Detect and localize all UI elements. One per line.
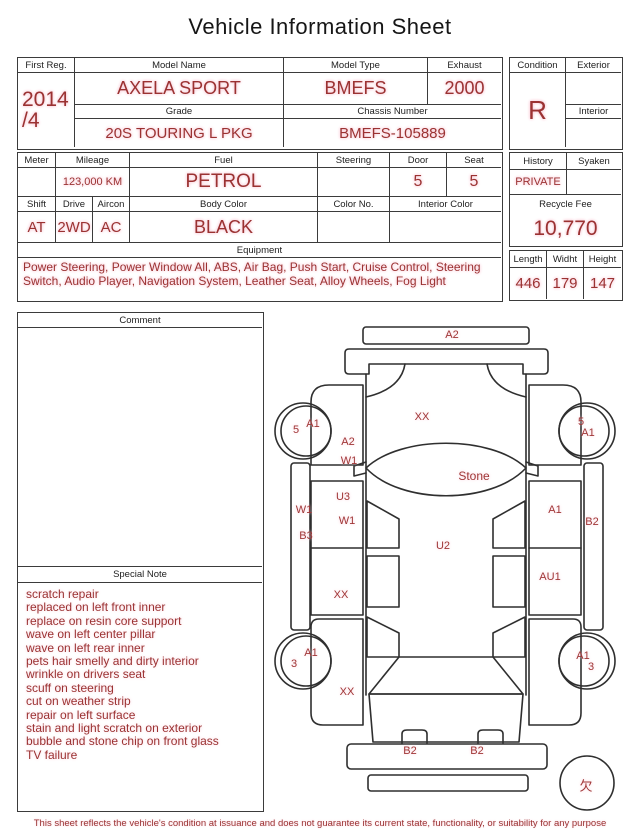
comment-note-box: Comment Special Note scratch repairrepla… <box>17 312 264 812</box>
mileage-value: 123,000 KM <box>56 168 130 197</box>
exterior-label: Exterior <box>566 58 621 73</box>
comment-area <box>18 328 262 567</box>
exhaust-value: 2000 <box>428 73 501 105</box>
special-note-line: wave on left center pillar <box>26 628 254 641</box>
condition-label: Condition <box>510 58 566 73</box>
footer-disclaimer: This sheet reflects the vehicle's condit… <box>0 818 640 829</box>
diagram-code-label: A1 <box>581 427 594 439</box>
diagram-label-layer: A2XX5A15A1A2W1StoneW1B3U3W1A1B2U2AU1XXA1… <box>265 305 640 815</box>
exhaust-label: Exhaust <box>428 58 501 73</box>
diagram-code-label: Stone <box>458 469 489 483</box>
history-box: History Syaken PRIVATE Recycle Fee 10,77… <box>509 152 623 247</box>
history-value: PRIVATE <box>510 170 567 195</box>
door-value: 5 <box>390 168 447 197</box>
width-label: Widht <box>547 251 584 268</box>
dimensions-box: Length Widht Height 446 179 147 <box>509 250 623 301</box>
grade-value: 20S TOURING L PKG <box>75 119 284 147</box>
color-no-value <box>318 212 390 243</box>
condition-box: Condition R Exterior Interior <box>509 57 623 150</box>
mileage-label: Mileage <box>56 153 130 168</box>
recycle-fee-label: Recycle Fee <box>510 195 621 213</box>
interior-color-value <box>390 212 501 243</box>
model-name-value: AXELA SPORT <box>75 73 284 105</box>
chassis-number-label: Chassis Number <box>284 105 501 119</box>
color-no-label: Color No. <box>318 197 390 212</box>
shift-label: Shift <box>18 197 56 212</box>
seat-label: Seat <box>447 153 501 168</box>
length-value: 446 <box>510 268 547 299</box>
special-note-label: Special Note <box>18 567 262 583</box>
diagram-code-label: 欠 <box>579 776 592 795</box>
diagram-code-label: XX <box>340 686 355 698</box>
diagram-code-label: A1 <box>306 418 319 430</box>
first-reg-label: First Reg. <box>18 58 75 73</box>
first-reg-month: /4 <box>22 110 40 131</box>
exterior-value <box>566 73 621 105</box>
aircon-value: AC <box>93 212 130 243</box>
specs-table: Meter Mileage Fuel Steering Door Seat 12… <box>17 152 503 302</box>
fuel-value: PETROL <box>130 168 318 197</box>
diagram-code-label: XX <box>415 411 430 423</box>
drive-label: Drive <box>56 197 93 212</box>
model-name-label: Model Name <box>75 58 284 73</box>
diagram-code-label: W1 <box>339 515 356 527</box>
car-damage-diagram: A2XX5A15A1A2W1StoneW1B3U3W1A1B2U2AU1XXA1… <box>265 305 640 815</box>
diagram-code-label: B2 <box>470 745 483 757</box>
equipment-label: Equipment <box>18 243 501 258</box>
special-note-line: cut on weather strip <box>26 695 254 708</box>
diagram-code-label: B3 <box>299 530 312 542</box>
length-label: Length <box>510 251 547 268</box>
first-reg-value: 2014 /4 <box>18 73 75 147</box>
interior-label: Interior <box>566 105 621 119</box>
special-note-line: wrinkle on drivers seat <box>26 668 254 681</box>
diagram-code-label: A1 <box>548 504 561 516</box>
fuel-label: Fuel <box>130 153 318 168</box>
model-type-value: BMEFS <box>284 73 428 105</box>
special-note-line: bubble and stone chip on front glass <box>26 735 254 748</box>
body-color-value: BLACK <box>130 212 318 243</box>
shift-value: AT <box>18 212 56 243</box>
page-title: Vehicle Information Sheet <box>0 14 640 40</box>
recycle-fee-value: 10,770 <box>510 213 621 244</box>
body-color-label: Body Color <box>130 197 318 212</box>
first-reg-year: 2014 <box>22 89 69 110</box>
diagram-code-label: U2 <box>436 540 450 552</box>
diagram-code-label: 3 <box>588 661 594 673</box>
diagram-code-label: 5 <box>293 424 299 436</box>
diagram-code-label: B2 <box>585 516 598 528</box>
diagram-code-label: A2 <box>445 329 458 341</box>
syaken-label: Syaken <box>567 153 621 170</box>
vehicle-info-sheet: Vehicle Information Sheet First Reg. 201… <box>0 0 640 835</box>
interior-color-label: Interior Color <box>390 197 501 212</box>
steering-value <box>318 168 390 197</box>
diagram-code-label: B2 <box>403 745 416 757</box>
equipment-text: Power Steering, Power Window All, ABS, A… <box>18 258 501 300</box>
diagram-code-label: AU1 <box>539 571 560 583</box>
diagram-code-label: A1 <box>304 647 317 659</box>
diagram-code-label: U3 <box>336 491 350 503</box>
special-note-line: replaced on left front inner <box>26 601 254 614</box>
special-note-line: TV failure <box>26 749 254 762</box>
meter-value <box>18 168 56 197</box>
door-label: Door <box>390 153 447 168</box>
vehicle-identity-table: First Reg. 2014 /4 Model Name AXELA SPOR… <box>17 57 503 150</box>
comment-label: Comment <box>18 313 262 328</box>
diagram-code-label: XX <box>334 589 349 601</box>
chassis-number-value: BMEFS-105889 <box>284 119 501 147</box>
aircon-label: Aircon <box>93 197 130 212</box>
diagram-code-label: A2 <box>341 436 354 448</box>
special-note-list: scratch repairreplaced on left front inn… <box>18 583 262 810</box>
seat-value: 5 <box>447 168 501 197</box>
diagram-code-label: W1 <box>341 455 358 467</box>
interior-value <box>566 119 621 147</box>
meter-label: Meter <box>18 153 56 168</box>
history-label: History <box>510 153 567 170</box>
model-type-label: Model Type <box>284 58 428 73</box>
drive-value: 2WD <box>56 212 93 243</box>
diagram-code-label: 3 <box>291 658 297 670</box>
diagram-code-label: W1 <box>296 504 313 516</box>
syaken-value <box>567 170 621 195</box>
width-value: 179 <box>547 268 584 299</box>
steering-label: Steering <box>318 153 390 168</box>
height-value: 147 <box>584 268 621 299</box>
grade-label: Grade <box>75 105 284 119</box>
condition-grade-value: R <box>510 73 566 147</box>
height-label: Height <box>584 251 621 268</box>
